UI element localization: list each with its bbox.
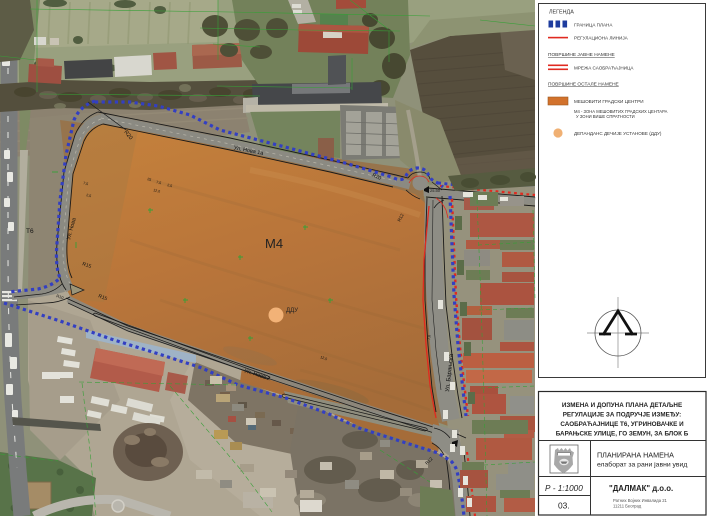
svg-text:елаборат за рани јавни увид: елаборат за рани јавни увид [597, 461, 687, 469]
svg-text:М4: М4 [265, 236, 283, 251]
svg-text:МЕШОВИТИ ГРАДСКИ ЦЕНТРИ: МЕШОВИТИ ГРАДСКИ ЦЕНТРИ [574, 99, 644, 104]
svg-text:РЕГУЛАЦИОНА ЛИНИЈА: РЕГУЛАЦИОНА ЛИНИЈА [574, 36, 629, 41]
svg-text:ИЗМЕНА И ДОПУНА ПЛАНА ДЕТАЉНЕ: ИЗМЕНА И ДОПУНА ПЛАНА ДЕТАЉНЕ [562, 402, 682, 409]
svg-text:11211 Београд: 11211 Београд [613, 504, 642, 509]
svg-text:7,0: 7,0 [427, 335, 432, 340]
svg-text:03.: 03. [558, 501, 570, 511]
svg-text:ДДУ: ДДУ [286, 308, 298, 314]
svg-text:ДЕПАНДАНС ДЕЧИЈЕ УСТАНОВЕ (ДДУ: ДЕПАНДАНС ДЕЧИЈЕ УСТАНОВЕ (ДДУ) [574, 131, 662, 136]
svg-text:БАРАЊСКЕ УЛИЦЕ, ГО ЗЕМУН, ЗА Б: БАРАЊСКЕ УЛИЦЕ, ГО ЗЕМУН, ЗА БЛОК Б [556, 431, 689, 438]
svg-text:ПОВРШИНЕ ОСТАЛЕ НАМЕНЕ: ПОВРШИНЕ ОСТАЛЕ НАМЕНЕ [548, 82, 619, 88]
svg-text:ПЛАНИРАНА НАМЕНА: ПЛАНИРАНА НАМЕНА [597, 451, 674, 460]
svg-text:Р - 1:1000: Р - 1:1000 [545, 484, 583, 493]
svg-text:У ЗОНИ ВИШЕ СПРАТНОСТИ: У ЗОНИ ВИШЕ СПРАТНОСТИ [576, 114, 635, 119]
svg-text:САОБРАЋАЈНИЦЕ Т6, УГРИНОВАЧКЕ: САОБРАЋАЈНИЦЕ Т6, УГРИНОВАЧКЕ И [560, 421, 684, 428]
svg-text:МРЕЖА САОБРАЋАЈНИЦА: МРЕЖА САОБРАЋАЈНИЦА [574, 66, 634, 71]
svg-text:Т6: Т6 [26, 228, 34, 235]
svg-text:ГРАНИЦА ПЛАНА: ГРАНИЦА ПЛАНА [574, 23, 613, 28]
svg-text:"ДАЛМАК" д.о.о.: "ДАЛМАК" д.о.о. [609, 484, 673, 493]
svg-text:РЕГУЛАЦИЈЕ ЗА ПОДРУЧЈЕ ИЗМЕЂУ:: РЕГУЛАЦИЈЕ ЗА ПОДРУЧЈЕ ИЗМЕЂУ: [563, 412, 682, 419]
svg-text:ЛЕГЕНДА: ЛЕГЕНДА [549, 10, 574, 16]
svg-text:ПОВРШИНЕ ЈАВНЕ НАМЕНЕ: ПОВРШИНЕ ЈАВНЕ НАМЕНЕ [548, 52, 615, 58]
svg-text:Ратних Војних Инвалида 21: Ратних Војних Инвалида 21 [613, 498, 668, 503]
svg-text:25.50: 25.50 [430, 188, 441, 193]
